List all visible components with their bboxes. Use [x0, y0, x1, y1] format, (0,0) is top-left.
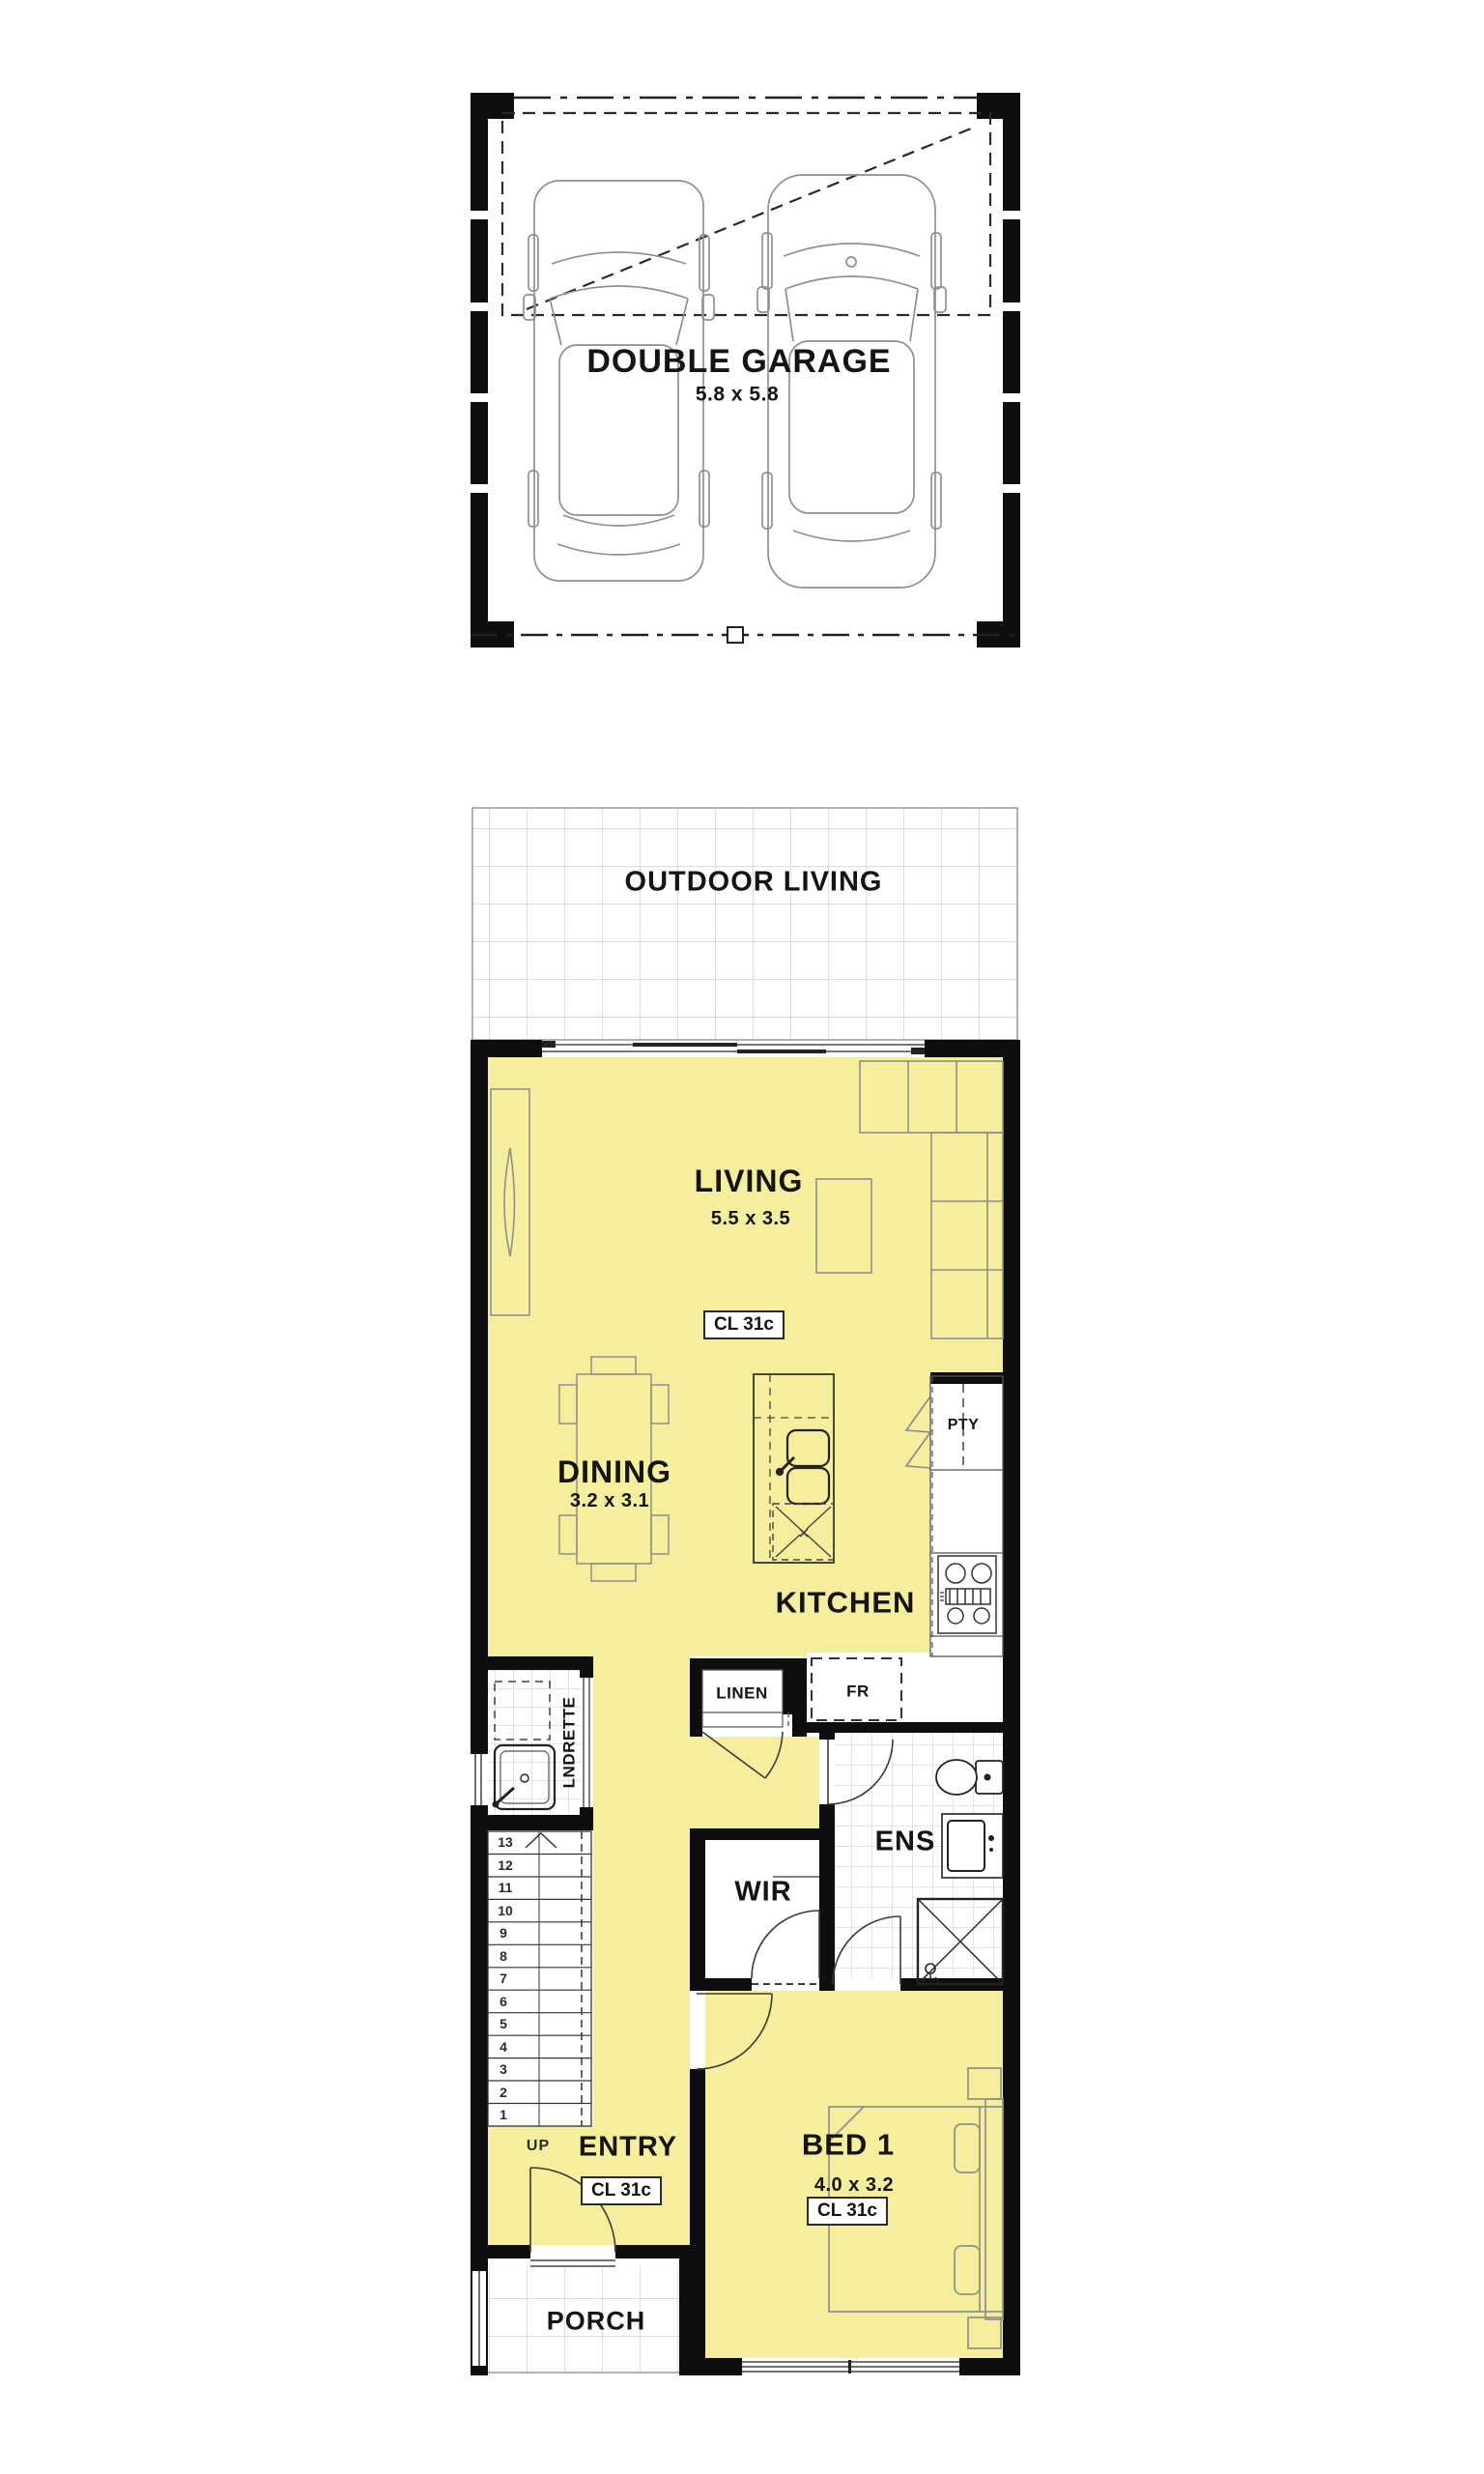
stair-number: 6	[499, 1995, 507, 2008]
dining-dims: 3.2 x 3.1	[570, 1491, 649, 1510]
boundary-marker	[728, 627, 743, 643]
entry-ceiling-badge: CL 31c	[581, 2176, 662, 2205]
living-dims: 5.5 x 3.5	[711, 1209, 790, 1228]
window	[471, 1754, 488, 1805]
threshold	[530, 2260, 615, 2266]
hall-floor	[690, 1737, 819, 1828]
hall-floor	[593, 1656, 690, 1991]
vanity-icon	[942, 1814, 1003, 1878]
stair-number: 13	[498, 1835, 513, 1849]
sliding-door	[542, 1041, 925, 1054]
outdoor-living-label: OUTDOOR LIVING	[625, 869, 883, 897]
fridge-label: FR	[846, 1683, 870, 1700]
laundry-sliding-door	[584, 1678, 589, 1807]
kitchen-label: KITCHEN	[776, 1588, 916, 1618]
car-icon	[524, 181, 714, 581]
laundry-label: LNDRETTE	[561, 1697, 578, 1789]
linen-label: LINEN	[716, 1685, 768, 1702]
living-dining-kitchen-floor	[488, 1057, 1003, 1656]
stair-number: 4	[499, 2040, 507, 2054]
stair-number: 12	[498, 1858, 513, 1872]
toilet-icon	[936, 1760, 1003, 1795]
stair-number: 5	[499, 2017, 507, 2030]
dining-label: DINING	[557, 1456, 671, 1487]
window	[742, 2358, 959, 2375]
stair-number: 10	[498, 1904, 513, 1917]
living-label: LIVING	[695, 1165, 804, 1196]
car-icon	[757, 175, 946, 588]
stair-number: 1	[499, 2108, 507, 2121]
bed1-ceiling-badge: CL 31c	[807, 2197, 888, 2226]
bed1-label: BED 1	[802, 2130, 895, 2160]
outdoor-living-room	[472, 808, 1017, 1040]
wir-floor	[705, 1840, 819, 1978]
wir-label: WIR	[734, 1879, 791, 1907]
stair-number: 3	[499, 2062, 507, 2076]
stair-number: 8	[499, 1949, 507, 1963]
garage-diagonal-dashed	[527, 129, 971, 309]
pantry-label: PTY	[948, 1418, 980, 1433]
bed1-dims: 4.0 x 3.2	[814, 2175, 894, 2195]
stair-number: 2	[499, 2086, 507, 2099]
stair-number: 11	[499, 1881, 513, 1894]
garage-label: DOUBLE GARAGE	[586, 345, 891, 378]
fridge-recess	[807, 1653, 1003, 1722]
stair-number: 7	[499, 1971, 507, 1985]
garage-dims: 5.8 x 5.8	[696, 385, 779, 405]
porch-opening	[472, 2271, 486, 2366]
floor-plan: DOUBLE GARAGE 5.8 x 5.8 OUTDOOR LIVING L…	[0, 0, 1484, 2474]
stair-number: 9	[499, 1926, 507, 1940]
ensuite-label: ENS	[875, 1828, 936, 1856]
living-ceiling-badge: CL 31c	[703, 1310, 785, 1339]
entry-label: ENTRY	[579, 2134, 677, 2162]
porch-label: PORCH	[547, 2309, 646, 2335]
up-label: UP	[527, 2139, 550, 2154]
garage-door-recess-dashed	[502, 113, 990, 315]
